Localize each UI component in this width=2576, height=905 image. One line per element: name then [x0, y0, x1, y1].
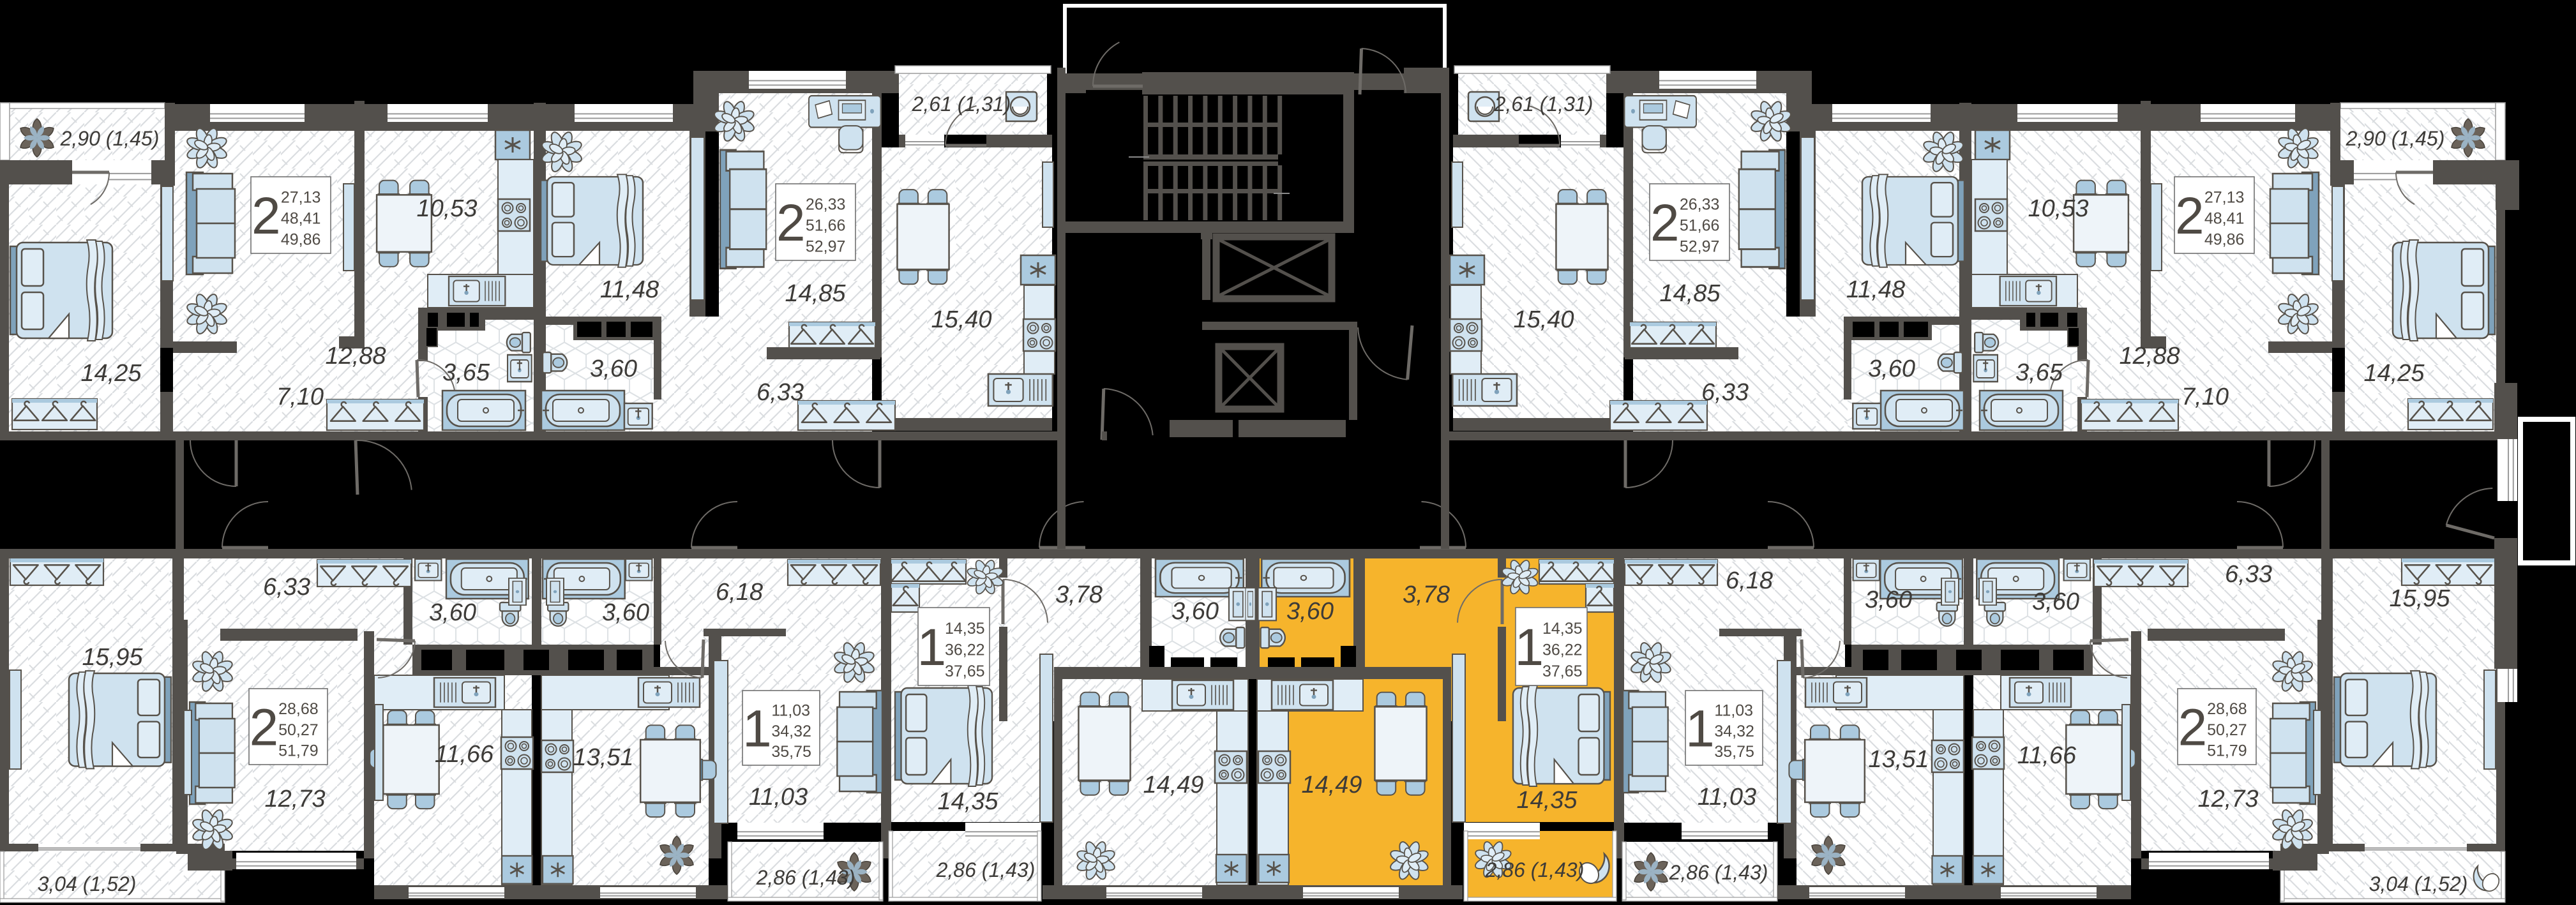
svg-text:2,61 (1,31): 2,61 (1,31): [1494, 93, 1593, 116]
svg-text:36,22: 36,22: [1542, 641, 1583, 659]
svg-text:36,22: 36,22: [945, 641, 985, 659]
svg-text:14,35: 14,35: [937, 788, 998, 815]
svg-text:6,33: 6,33: [757, 379, 804, 406]
svg-text:14,85: 14,85: [785, 280, 846, 307]
svg-text:27,13: 27,13: [2204, 188, 2245, 206]
svg-text:7,10: 7,10: [2181, 384, 2229, 410]
svg-text:48,41: 48,41: [2204, 209, 2245, 227]
svg-text:7,10: 7,10: [276, 384, 324, 410]
svg-text:52,97: 52,97: [1680, 237, 1720, 255]
svg-text:2,90 (1,45): 2,90 (1,45): [60, 127, 160, 150]
svg-text:2,86 (1,43): 2,86 (1,43): [756, 866, 855, 889]
svg-text:1: 1: [1514, 618, 1544, 677]
svg-text:6,18: 6,18: [1726, 567, 1773, 594]
svg-text:14,49: 14,49: [1143, 772, 1203, 798]
svg-text:14,35: 14,35: [945, 620, 985, 638]
svg-text:3,60: 3,60: [429, 599, 476, 626]
svg-text:49,86: 49,86: [281, 230, 321, 248]
svg-text:12,73: 12,73: [264, 786, 325, 812]
svg-text:11,48: 11,48: [1846, 276, 1905, 303]
svg-text:2,61 (1,31): 2,61 (1,31): [912, 93, 1011, 116]
svg-text:2: 2: [1650, 194, 1680, 252]
svg-text:28,68: 28,68: [278, 700, 319, 718]
svg-text:14,25: 14,25: [2363, 360, 2425, 387]
svg-text:6,18: 6,18: [716, 579, 763, 606]
svg-text:15,40: 15,40: [1513, 306, 1574, 333]
svg-text:34,32: 34,32: [771, 722, 811, 740]
svg-text:3,60: 3,60: [2032, 588, 2079, 615]
svg-text:34,32: 34,32: [1714, 722, 1754, 740]
svg-text:27,13: 27,13: [281, 188, 321, 206]
svg-text:15,95: 15,95: [82, 644, 143, 671]
svg-text:15,40: 15,40: [931, 306, 991, 333]
svg-text:50,27: 50,27: [278, 721, 319, 739]
svg-text:50,27: 50,27: [2207, 721, 2247, 739]
svg-text:6,33: 6,33: [263, 574, 310, 601]
svg-text:49,86: 49,86: [2204, 230, 2245, 248]
svg-text:2: 2: [250, 699, 279, 757]
svg-text:14,35: 14,35: [1516, 787, 1578, 814]
svg-text:2: 2: [2175, 187, 2204, 245]
svg-text:37,65: 37,65: [1542, 662, 1583, 680]
svg-text:3,60: 3,60: [1865, 587, 1912, 613]
svg-text:1: 1: [917, 618, 946, 677]
svg-text:12,73: 12,73: [2197, 786, 2258, 812]
svg-text:14,35: 14,35: [1542, 620, 1583, 638]
svg-text:3,60: 3,60: [602, 599, 649, 626]
svg-text:6,33: 6,33: [1701, 379, 1749, 406]
svg-text:6,33: 6,33: [2225, 561, 2272, 588]
svg-text:26,33: 26,33: [806, 195, 846, 213]
svg-text:1: 1: [742, 700, 772, 758]
svg-text:51,79: 51,79: [2207, 742, 2247, 760]
svg-text:12,88: 12,88: [325, 343, 386, 370]
svg-text:12,88: 12,88: [2119, 343, 2180, 370]
svg-text:3,78: 3,78: [1055, 581, 1103, 608]
svg-text:37,65: 37,65: [945, 662, 985, 680]
svg-text:11,03: 11,03: [771, 702, 810, 720]
svg-text:11,48: 11,48: [600, 276, 659, 303]
svg-text:3,04 (1,52): 3,04 (1,52): [2369, 872, 2468, 895]
svg-text:3,78: 3,78: [1403, 581, 1450, 608]
svg-text:2,86 (1,43): 2,86 (1,43): [1669, 861, 1768, 884]
svg-text:3,04 (1,52): 3,04 (1,52): [38, 872, 137, 895]
svg-text:2: 2: [2178, 699, 2208, 757]
svg-text:35,75: 35,75: [771, 743, 811, 761]
svg-text:51,66: 51,66: [806, 216, 846, 234]
svg-text:13,51: 13,51: [1868, 746, 1929, 773]
svg-text:10,53: 10,53: [2028, 195, 2088, 222]
svg-text:14,49: 14,49: [1301, 772, 1362, 798]
svg-text:14,25: 14,25: [80, 360, 142, 387]
svg-text:15,95: 15,95: [2389, 585, 2450, 612]
svg-text:3,60: 3,60: [1286, 598, 1334, 625]
svg-text:26,33: 26,33: [1680, 195, 1720, 213]
svg-text:11,66: 11,66: [2017, 742, 2077, 769]
svg-text:2,86 (1,43): 2,86 (1,43): [1485, 858, 1585, 881]
svg-text:2,90 (1,45): 2,90 (1,45): [2346, 127, 2445, 150]
svg-text:1: 1: [1685, 700, 1715, 758]
svg-text:10,53: 10,53: [416, 195, 477, 222]
svg-text:48,41: 48,41: [281, 209, 321, 227]
svg-text:14,85: 14,85: [1659, 280, 1721, 307]
svg-text:11,66: 11,66: [435, 741, 494, 768]
svg-text:52,97: 52,97: [806, 237, 846, 255]
svg-text:2: 2: [776, 194, 806, 252]
svg-text:3,65: 3,65: [2015, 359, 2063, 386]
svg-text:51,66: 51,66: [1680, 216, 1720, 234]
svg-text:51,79: 51,79: [278, 742, 319, 760]
svg-text:11,03: 11,03: [1714, 702, 1753, 720]
svg-text:2: 2: [252, 187, 281, 245]
svg-text:11,03: 11,03: [749, 784, 808, 811]
svg-text:35,75: 35,75: [1714, 743, 1754, 761]
svg-text:28,68: 28,68: [2207, 700, 2247, 718]
svg-text:3,65: 3,65: [442, 359, 490, 386]
svg-text:13,51: 13,51: [573, 744, 633, 771]
svg-text:2,86 (1,43): 2,86 (1,43): [936, 858, 1036, 881]
svg-text:11,03: 11,03: [1698, 784, 1756, 811]
svg-text:3,60: 3,60: [590, 355, 637, 382]
svg-text:3,60: 3,60: [1171, 598, 1219, 625]
svg-text:3,60: 3,60: [1868, 355, 1915, 382]
